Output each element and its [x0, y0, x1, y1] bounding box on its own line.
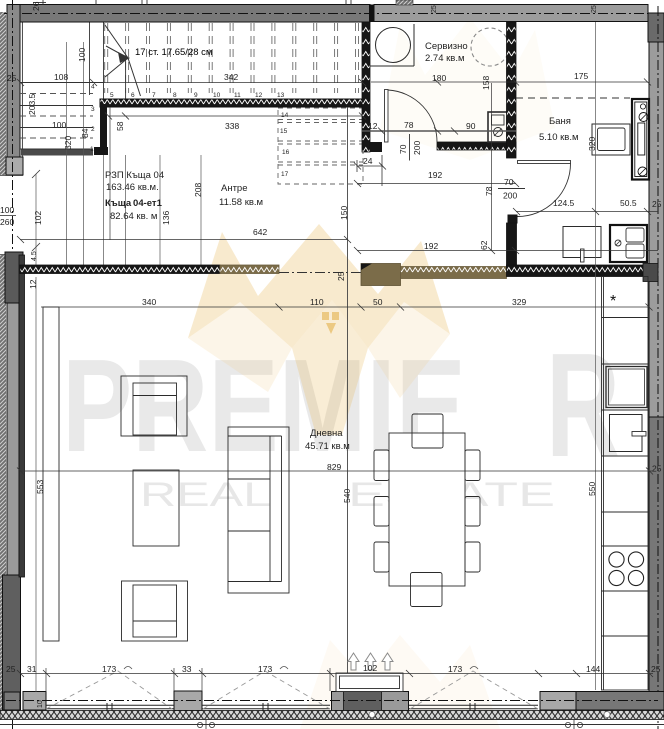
- svg-text:12: 12: [255, 92, 263, 99]
- svg-text:4.5: 4.5: [31, 251, 38, 261]
- svg-text:82.64 кв. м: 82.64 кв. м: [110, 211, 157, 222]
- svg-text:24: 24: [363, 156, 373, 166]
- svg-text:320: 320: [587, 137, 597, 151]
- svg-text:136: 136: [161, 211, 171, 225]
- svg-text:2.74 кв.м: 2.74 кв.м: [425, 53, 465, 64]
- svg-text:200: 200: [412, 141, 422, 155]
- svg-text:642: 642: [253, 227, 267, 237]
- svg-text:84: 84: [80, 128, 90, 138]
- svg-text:Къща 04-ет1: Къща 04-ет1: [105, 198, 163, 209]
- svg-text:Антре: Антре: [221, 183, 248, 194]
- svg-text:260: 260: [0, 217, 14, 227]
- svg-text:25: 25: [431, 5, 438, 13]
- svg-text:25: 25: [652, 464, 662, 474]
- svg-text:4: 4: [91, 84, 95, 91]
- svg-text:13: 13: [277, 92, 285, 99]
- svg-text:17: 17: [281, 171, 289, 178]
- svg-text:329: 329: [512, 297, 526, 307]
- svg-text:16: 16: [282, 149, 290, 156]
- svg-text:338: 338: [225, 121, 239, 131]
- svg-text:175: 175: [574, 71, 588, 81]
- svg-text:110: 110: [310, 297, 324, 307]
- svg-text:26: 26: [31, 1, 41, 11]
- svg-text:Баня: Баня: [549, 116, 571, 127]
- svg-text:90: 90: [466, 121, 476, 131]
- svg-text:31: 31: [27, 664, 37, 674]
- svg-text:342: 342: [224, 72, 238, 82]
- svg-text:100: 100: [0, 205, 14, 215]
- svg-text:70: 70: [398, 144, 408, 154]
- svg-text:78: 78: [404, 120, 414, 130]
- svg-text:553: 553: [35, 480, 45, 494]
- svg-text:540: 540: [342, 489, 352, 503]
- svg-text:6: 6: [131, 92, 135, 99]
- svg-text:70: 70: [504, 177, 514, 187]
- svg-text:50: 50: [373, 297, 383, 307]
- svg-text:11: 11: [234, 92, 241, 99]
- svg-text:1: 1: [90, 146, 94, 153]
- svg-text:550: 550: [587, 482, 597, 496]
- svg-text:158: 158: [481, 76, 491, 90]
- svg-text:REAL: REAL: [140, 476, 271, 514]
- svg-text:Сервизно: Сервизно: [425, 41, 468, 52]
- svg-text:124.5: 124.5: [553, 198, 575, 208]
- svg-text:192: 192: [424, 241, 438, 251]
- svg-text:R: R: [546, 323, 620, 488]
- svg-text:8: 8: [173, 92, 177, 99]
- svg-text:173: 173: [448, 664, 462, 674]
- svg-text:14: 14: [281, 112, 289, 119]
- svg-text:25: 25: [336, 271, 346, 281]
- svg-text:45.71 кв.м: 45.71 кв.м: [305, 441, 350, 452]
- svg-text:62: 62: [479, 240, 489, 250]
- svg-text:3: 3: [91, 106, 95, 113]
- svg-text:180: 180: [432, 73, 446, 83]
- svg-text:320: 320: [63, 136, 73, 150]
- svg-text:100: 100: [52, 120, 66, 130]
- svg-text:25: 25: [6, 664, 16, 674]
- svg-text:25: 25: [7, 73, 17, 83]
- svg-text:102: 102: [363, 663, 377, 673]
- svg-text:50.5: 50.5: [620, 198, 637, 208]
- svg-text:192: 192: [428, 170, 442, 180]
- svg-text:10: 10: [37, 700, 44, 708]
- svg-text:5.10 кв.м: 5.10 кв.м: [539, 132, 579, 143]
- svg-text:340: 340: [142, 297, 156, 307]
- svg-text:108: 108: [54, 72, 68, 82]
- svg-text:33: 33: [182, 664, 192, 674]
- svg-text:200: 200: [503, 191, 517, 201]
- svg-text:12: 12: [368, 121, 378, 131]
- svg-text:203.5: 203.5: [27, 93, 37, 115]
- svg-text:5: 5: [110, 92, 114, 99]
- svg-text:7: 7: [152, 92, 156, 99]
- svg-text:10: 10: [213, 92, 221, 99]
- svg-text:9: 9: [194, 92, 198, 99]
- svg-text:829: 829: [327, 462, 341, 472]
- svg-text:12: 12: [28, 279, 38, 289]
- svg-text:17 ст. 17.65/28 см: 17 ст. 17.65/28 см: [135, 47, 212, 58]
- svg-text:25: 25: [651, 664, 661, 674]
- svg-text:58: 58: [115, 121, 125, 131]
- svg-text:2: 2: [91, 126, 95, 133]
- svg-text:РЗП Къща 04: РЗП Къща 04: [105, 170, 164, 181]
- svg-text:163.46 кв.м.: 163.46 кв.м.: [106, 182, 159, 193]
- svg-text:144: 144: [586, 664, 600, 674]
- svg-text:*: *: [610, 293, 616, 310]
- svg-text:173: 173: [258, 664, 272, 674]
- svg-text:150: 150: [339, 206, 349, 220]
- svg-text:25: 25: [652, 199, 662, 209]
- svg-text:11.58 кв.м: 11.58 кв.м: [219, 197, 263, 208]
- svg-text:78: 78: [484, 186, 494, 196]
- svg-text:100: 100: [77, 48, 87, 62]
- svg-text:Дневна: Дневна: [310, 428, 343, 439]
- svg-text:15: 15: [280, 128, 288, 135]
- svg-text:25: 25: [591, 5, 598, 13]
- svg-text:173: 173: [102, 664, 116, 674]
- svg-text:208: 208: [193, 183, 203, 197]
- svg-text:102: 102: [33, 211, 43, 225]
